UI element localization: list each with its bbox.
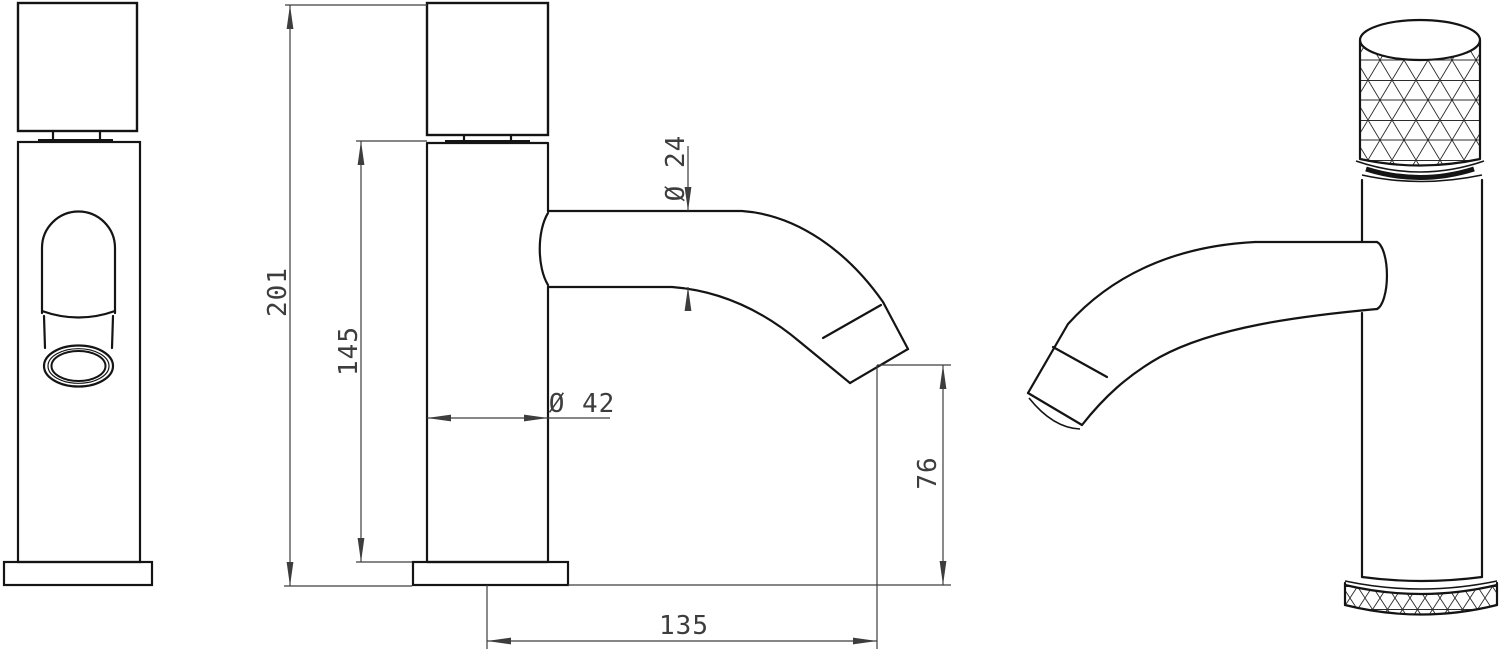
pictorial-base — [1345, 577, 1497, 615]
front-view — [4, 3, 152, 585]
pictorial-handle-top — [1360, 20, 1480, 60]
pictorial-spout — [1028, 242, 1387, 429]
dimension-145: 145 — [334, 141, 427, 562]
dim-label-spout-outlet-height: 76 — [913, 456, 943, 489]
front-spout-outlet-inner-ring — [52, 351, 106, 381]
pictorial-view — [1028, 20, 1497, 615]
side-spout-joint-fillet — [540, 213, 548, 285]
side-spout — [548, 211, 908, 383]
side-spout-aerator-line — [823, 305, 881, 338]
dim-label-body-diameter: Ø 42 — [549, 389, 616, 419]
dimension-201: 201 — [263, 5, 427, 586]
pictorial-spout-tip-face — [1028, 393, 1082, 425]
side-body — [427, 143, 548, 562]
dimension-42: Ø 42 — [427, 389, 615, 421]
front-spout-outline — [42, 212, 115, 387]
side-knurled-base — [413, 562, 568, 585]
side-view — [413, 3, 908, 585]
technical-drawing-page: 201 145 Ø 24 Ø 42 76 135 — [0, 0, 1500, 651]
pictorial-spout-aerator-line — [1053, 347, 1107, 377]
faucet-technical-drawing: 201 145 Ø 24 Ø 42 76 135 — [0, 0, 1500, 651]
front-knurled-base — [4, 562, 152, 585]
dim-label-spout-reach: 135 — [659, 611, 709, 641]
front-knurled-handle — [18, 3, 137, 131]
dim-label-spout-diameter: Ø 24 — [661, 135, 691, 202]
dim-label-overall-height: 201 — [263, 267, 293, 317]
front-spout-outlet-mid-ring — [48, 349, 109, 384]
side-knurled-handle — [427, 3, 548, 135]
pictorial-handle-knurl-fill — [1360, 40, 1480, 166]
side-spout-tip-face — [850, 349, 908, 383]
dimension-76: 76 — [568, 365, 951, 585]
pictorial-spout-outlet-rim — [1029, 398, 1080, 429]
dimension-135: 135 — [487, 365, 877, 649]
dim-label-body-height: 145 — [334, 326, 364, 376]
pictorial-body — [1362, 180, 1482, 577]
dimension-24: Ø 24 — [661, 135, 691, 311]
